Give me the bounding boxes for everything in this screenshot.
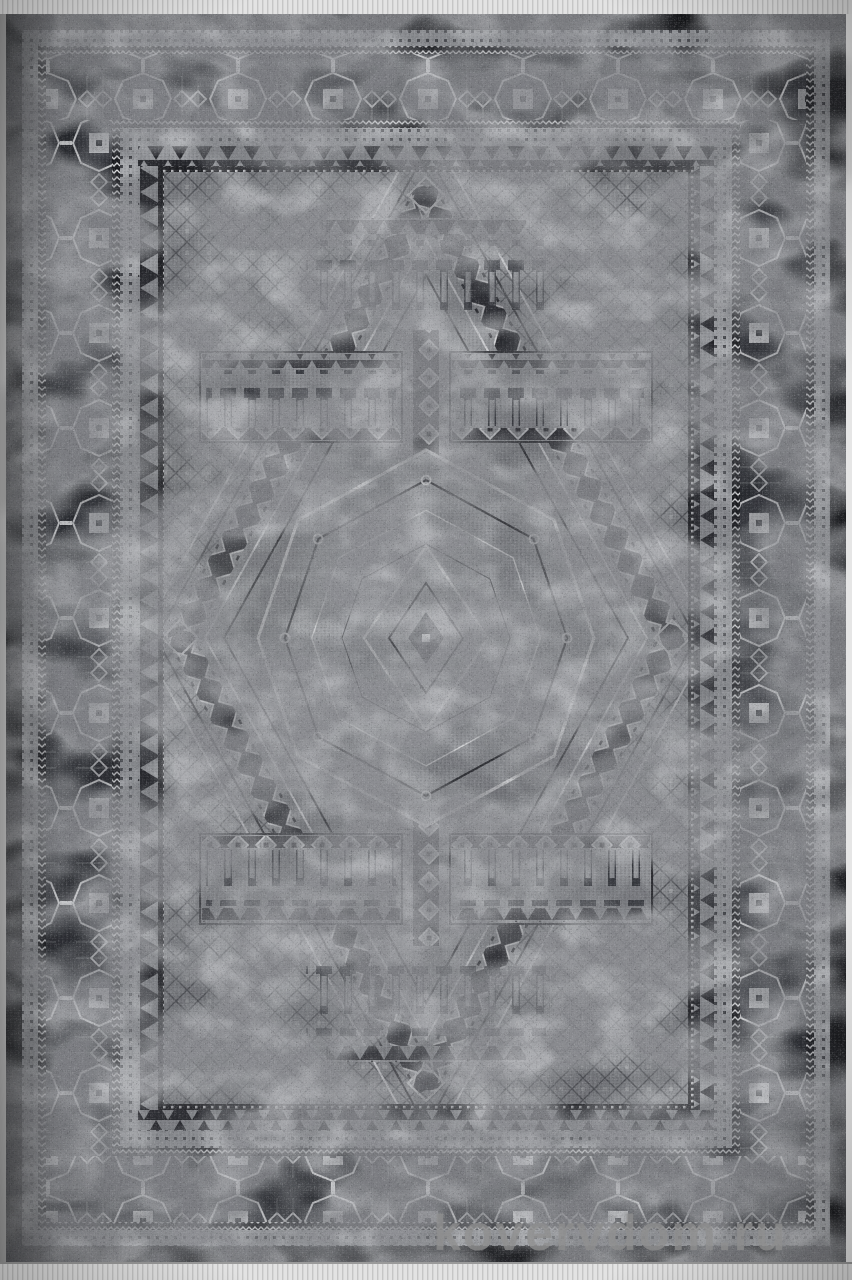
rug-photo: kovervdom.ru xyxy=(0,0,852,1280)
vignette xyxy=(0,0,852,1280)
rug-image xyxy=(0,0,852,1280)
edge-shading xyxy=(0,14,60,1262)
